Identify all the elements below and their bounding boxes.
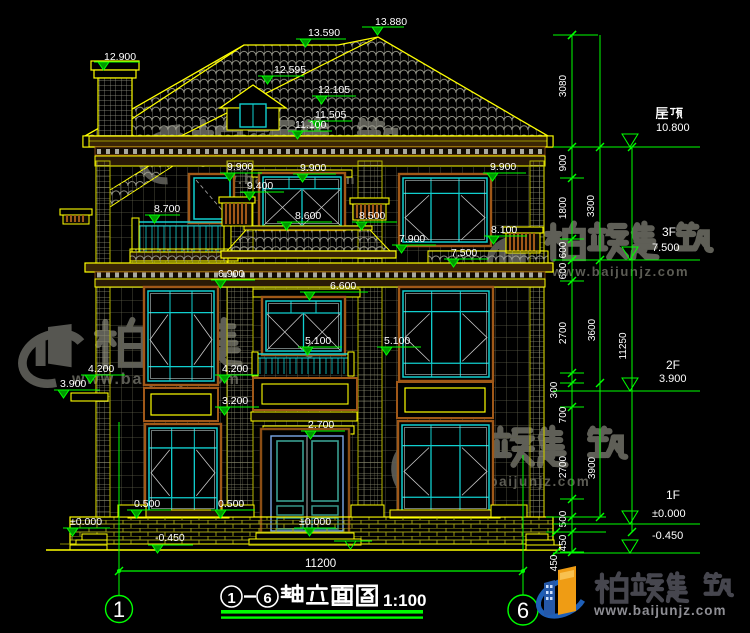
svg-text:300: 300 bbox=[549, 381, 560, 398]
svg-text:7.900: 7.900 bbox=[399, 233, 425, 245]
svg-text:www.baijunjz.com: www.baijunjz.com bbox=[593, 603, 727, 618]
svg-text:±0.000: ±0.000 bbox=[652, 508, 686, 520]
svg-text:600: 600 bbox=[558, 262, 569, 279]
svg-text:6.600: 6.600 bbox=[330, 280, 356, 292]
svg-text:3080: 3080 bbox=[558, 74, 569, 97]
svg-text:3.900: 3.900 bbox=[659, 373, 687, 385]
svg-text:±0.000: ±0.000 bbox=[70, 516, 102, 528]
svg-text:4.200: 4.200 bbox=[88, 363, 114, 375]
svg-text:1800: 1800 bbox=[558, 196, 569, 219]
svg-text:8.500: 8.500 bbox=[359, 210, 385, 222]
svg-text:7.500: 7.500 bbox=[451, 247, 477, 259]
svg-text:4.200: 4.200 bbox=[222, 363, 248, 375]
svg-text:13.590: 13.590 bbox=[308, 27, 340, 39]
svg-text:11.100: 11.100 bbox=[295, 119, 326, 131]
svg-text:2700: 2700 bbox=[558, 321, 569, 344]
svg-text:1F: 1F bbox=[666, 488, 680, 502]
svg-text:2F: 2F bbox=[666, 358, 680, 372]
svg-text:0.500: 0.500 bbox=[134, 498, 160, 510]
svg-text:3600: 3600 bbox=[587, 318, 598, 341]
svg-text:450: 450 bbox=[549, 554, 560, 571]
svg-text:-0.450: -0.450 bbox=[155, 532, 185, 544]
svg-text:700: 700 bbox=[558, 406, 569, 423]
svg-text:11200: 11200 bbox=[305, 558, 336, 570]
svg-text:3.200: 3.200 bbox=[222, 395, 248, 407]
svg-text:2.700: 2.700 bbox=[308, 419, 334, 431]
svg-text:8.600: 8.600 bbox=[295, 210, 321, 222]
svg-text:1:100: 1:100 bbox=[383, 591, 426, 610]
svg-text:12.595: 12.595 bbox=[274, 64, 306, 76]
svg-text:9.900: 9.900 bbox=[227, 161, 253, 173]
svg-text:9.900: 9.900 bbox=[300, 162, 326, 174]
svg-text:3F: 3F bbox=[662, 225, 676, 239]
svg-text:13.880: 13.880 bbox=[375, 16, 407, 28]
svg-text:9.400: 9.400 bbox=[247, 180, 273, 192]
svg-text:12.900: 12.900 bbox=[104, 51, 136, 63]
svg-text:12.105: 12.105 bbox=[318, 84, 350, 96]
svg-text:11250: 11250 bbox=[618, 332, 629, 360]
svg-text:3300: 3300 bbox=[586, 194, 597, 217]
svg-text:±0.000: ±0.000 bbox=[299, 516, 331, 528]
svg-text:450: 450 bbox=[558, 534, 569, 551]
svg-text:500: 500 bbox=[558, 510, 569, 527]
svg-text:6: 6 bbox=[517, 598, 529, 623]
svg-text:3.900: 3.900 bbox=[60, 378, 86, 390]
svg-text:600: 600 bbox=[558, 241, 569, 258]
svg-text:5.100: 5.100 bbox=[384, 335, 410, 347]
svg-text:10.800: 10.800 bbox=[656, 122, 690, 134]
svg-text:8.100: 8.100 bbox=[491, 224, 517, 236]
svg-text:6.900: 6.900 bbox=[218, 268, 244, 280]
svg-text:8.700: 8.700 bbox=[154, 203, 180, 215]
svg-text:2700: 2700 bbox=[558, 455, 569, 478]
svg-text:7.500: 7.500 bbox=[652, 242, 680, 254]
svg-text:1: 1 bbox=[227, 590, 235, 607]
svg-text:0.500: 0.500 bbox=[218, 498, 244, 510]
svg-text:3900: 3900 bbox=[587, 456, 598, 479]
svg-text:5.100: 5.100 bbox=[305, 335, 331, 347]
svg-text:1: 1 bbox=[113, 597, 125, 622]
svg-text:-0.450: -0.450 bbox=[652, 530, 683, 542]
svg-text:9.900: 9.900 bbox=[490, 161, 516, 173]
svg-text:6: 6 bbox=[263, 590, 271, 607]
svg-text:900: 900 bbox=[558, 154, 569, 171]
